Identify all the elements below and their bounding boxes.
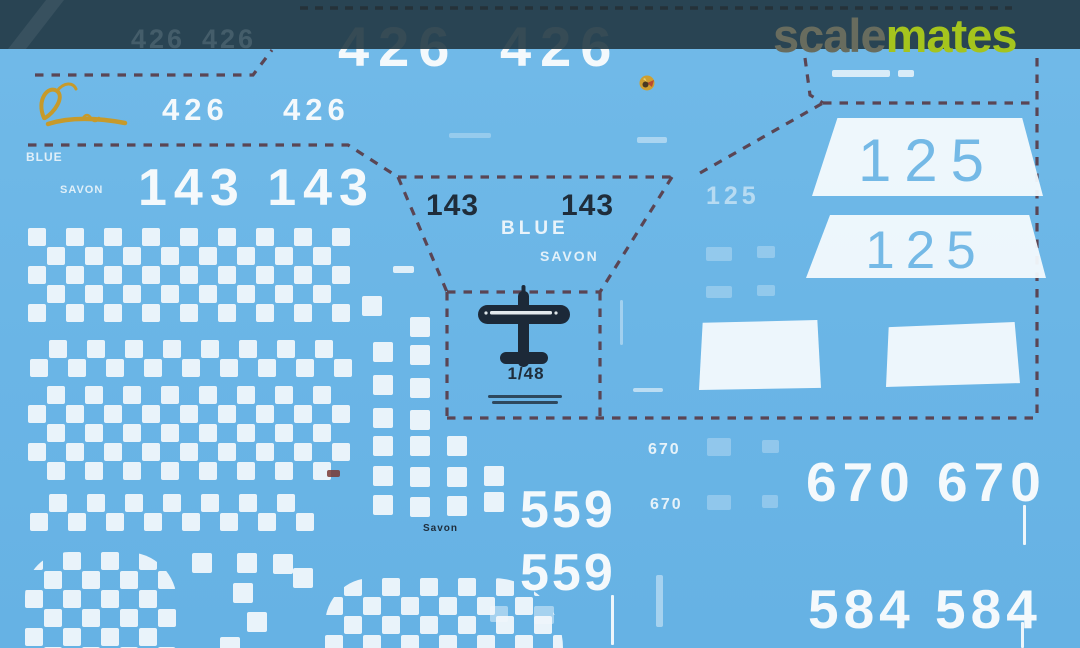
checker-square [104, 443, 122, 461]
decal-sheet-image: 426 426 426 426 BLUE SAVON 143 143 143 1… [0, 0, 1080, 648]
checker-blob [325, 578, 563, 648]
checker-square [344, 578, 362, 596]
checker-square [180, 405, 198, 423]
checker-square [182, 513, 200, 531]
checker-square [66, 304, 84, 322]
fine-print-bar [832, 70, 890, 77]
checker-square [313, 285, 331, 303]
checker-square [44, 571, 62, 589]
checker-square [180, 228, 198, 246]
checker-square [158, 571, 176, 589]
loose-square [410, 467, 430, 487]
checker-square [125, 494, 143, 512]
loose-square [293, 568, 313, 588]
checker-square [258, 359, 276, 377]
fine-print-bar [327, 470, 340, 477]
checker-square [237, 462, 255, 480]
checker-square [218, 266, 236, 284]
checker-square [87, 340, 105, 358]
checker-square [123, 424, 141, 442]
checker-square [218, 443, 236, 461]
checker-square [120, 571, 138, 589]
checker-square [294, 304, 312, 322]
checker-square [66, 405, 84, 423]
loose-square [447, 496, 467, 516]
checker-square [47, 285, 65, 303]
loose-square [273, 554, 293, 574]
faint-ghost-square [707, 495, 731, 510]
checker-square [101, 628, 119, 646]
checker-square [199, 386, 217, 404]
checker-square [382, 578, 400, 596]
loose-square [237, 553, 257, 573]
checker-square [218, 304, 236, 322]
checker-square [85, 285, 103, 303]
fine-print-bar [637, 137, 667, 143]
fine-print-bar [490, 606, 508, 622]
thin-white-line [1023, 505, 1026, 545]
checker-square [28, 228, 46, 246]
checker-square [125, 340, 143, 358]
checker-square [68, 359, 86, 377]
checker-square [180, 304, 198, 322]
loose-square [233, 583, 253, 603]
faint-ghost-square [707, 438, 731, 456]
checker-square [163, 494, 181, 512]
loose-square [410, 410, 430, 430]
checker-square [275, 462, 293, 480]
watermark-scale: scale [773, 9, 886, 62]
checker-square [142, 266, 160, 284]
checker-square [144, 513, 162, 531]
checker-square [275, 424, 293, 442]
checker-square [28, 405, 46, 423]
checker-square [313, 424, 331, 442]
checker-square [458, 578, 476, 596]
checker-square [296, 513, 314, 531]
checker-square [439, 635, 457, 648]
loose-square [410, 497, 430, 517]
checker-square [325, 597, 343, 615]
checker-square [161, 462, 179, 480]
checker-square [28, 266, 46, 284]
checker-square [25, 590, 43, 608]
checker-square [199, 247, 217, 265]
checker-square [68, 513, 86, 531]
checker-square [63, 590, 81, 608]
checker-square [49, 494, 67, 512]
loose-square [373, 342, 393, 362]
checker-square [332, 304, 350, 322]
checker-square [163, 340, 181, 358]
loose-square [373, 466, 393, 486]
scalemates-watermark: scalemates [773, 12, 1016, 59]
checker-square [275, 285, 293, 303]
thin-white-line [611, 595, 614, 645]
checker-square [296, 359, 314, 377]
ghost-number-b: 426 [202, 24, 256, 55]
checker-square [199, 462, 217, 480]
checker-square [104, 228, 122, 246]
checker-square [401, 635, 419, 648]
checker-square [101, 590, 119, 608]
loose-square [192, 553, 212, 573]
checker-square [315, 340, 333, 358]
checker-square [239, 340, 257, 358]
checker-square [332, 405, 350, 423]
faint-ghost-square [706, 286, 732, 298]
loose-square [247, 612, 267, 632]
checker-square [313, 247, 331, 265]
fine-print-bar [620, 300, 623, 345]
fine-print-bar [534, 606, 554, 624]
checker-square [220, 513, 238, 531]
yellow-script-logo [28, 80, 138, 132]
checker-square [106, 513, 124, 531]
checker-square [180, 266, 198, 284]
checker-square [182, 359, 200, 377]
checker-square [180, 443, 198, 461]
checker-square [237, 285, 255, 303]
checker-square [66, 266, 84, 284]
checker-square [63, 552, 81, 570]
checker-square [139, 590, 157, 608]
checker-square [332, 443, 350, 461]
checker-square [256, 228, 274, 246]
checker-square [199, 424, 217, 442]
checker-square [106, 359, 124, 377]
loose-square [447, 436, 467, 456]
checker-square [139, 552, 157, 570]
checker-square [332, 266, 350, 284]
checker-square [66, 228, 84, 246]
checker-square [332, 228, 350, 246]
checker-square [256, 405, 274, 423]
checker-square [294, 266, 312, 284]
checker-square [144, 359, 162, 377]
checker-square [237, 424, 255, 442]
checker-square [142, 443, 160, 461]
checker-square [477, 635, 495, 648]
faint-ghost-square [757, 246, 775, 258]
loose-square [373, 408, 393, 428]
checker-square [275, 386, 293, 404]
checker-square [66, 443, 84, 461]
checker-square [277, 494, 295, 512]
checker-square [123, 386, 141, 404]
fine-print-bar [898, 70, 914, 77]
checker-square [218, 228, 236, 246]
checker-square [142, 405, 160, 423]
faint-ghost-square [757, 285, 775, 296]
faint-ghost-square [706, 247, 732, 261]
checker-square [294, 405, 312, 423]
checker-square [553, 635, 563, 648]
checker-square [294, 443, 312, 461]
faint-ghost-square [762, 440, 779, 453]
checker-square [277, 340, 295, 358]
checker-blob [25, 552, 177, 648]
checker-square [161, 424, 179, 442]
checker-square [334, 359, 352, 377]
loose-square [410, 345, 430, 365]
thin-white-line [1021, 622, 1024, 648]
checker-square [534, 578, 552, 596]
fine-print-bar [449, 133, 491, 138]
checker-square [201, 340, 219, 358]
checker-square [87, 494, 105, 512]
fine-print-bar [656, 575, 663, 627]
checker-square [258, 513, 276, 531]
fine-print-bar [633, 388, 663, 392]
checker-square [313, 386, 331, 404]
faint-ghost-square [762, 495, 778, 508]
small-insignia-icon [638, 74, 656, 92]
checker-square [161, 247, 179, 265]
checker-square [515, 635, 533, 648]
checker-square [363, 635, 381, 648]
checker-square [123, 247, 141, 265]
checker-square [85, 462, 103, 480]
checker-square [199, 285, 217, 303]
loose-square [410, 317, 430, 337]
checker-square [420, 616, 438, 634]
fine-print-bar [488, 395, 562, 398]
checker-square [139, 628, 157, 646]
checker-square [325, 635, 343, 648]
ghost-number-a: 426 [131, 24, 185, 55]
watermark-mates: mates [886, 9, 1017, 62]
checker-square [25, 628, 43, 646]
checker-square [496, 578, 514, 596]
checker-square [85, 424, 103, 442]
loose-square [220, 637, 240, 648]
loose-square [373, 375, 393, 395]
checker-square [101, 552, 119, 570]
checker-square [344, 616, 362, 634]
checker-square [47, 247, 65, 265]
checker-square [28, 443, 46, 461]
checker-square [515, 597, 533, 615]
checker-square [294, 228, 312, 246]
checker-square [49, 340, 67, 358]
loose-square [484, 466, 504, 486]
checker-square [158, 609, 176, 627]
checker-square [104, 405, 122, 423]
checker-square [142, 304, 160, 322]
checker-square [458, 616, 476, 634]
checker-square [218, 405, 236, 423]
checker-square [161, 386, 179, 404]
checker-square [382, 616, 400, 634]
checker-square [401, 597, 419, 615]
checker-square [30, 513, 48, 531]
checker-square [553, 597, 563, 615]
checker-patterns-layer [0, 0, 1080, 648]
checker-square [420, 578, 438, 596]
checker-square [275, 247, 293, 265]
fine-print-bar [393, 266, 414, 273]
checker-square [104, 266, 122, 284]
loose-square [373, 436, 393, 456]
checker-square [161, 285, 179, 303]
loose-square [447, 467, 467, 487]
loose-square [362, 296, 382, 316]
checker-square [47, 424, 65, 442]
checker-square [104, 304, 122, 322]
checker-square [47, 386, 65, 404]
loose-square [410, 436, 430, 456]
checker-square [256, 304, 274, 322]
checker-square [142, 228, 160, 246]
fine-print-bar [492, 401, 558, 404]
checker-square [120, 609, 138, 627]
checker-square [47, 462, 65, 480]
checker-square [237, 247, 255, 265]
checker-square [439, 597, 457, 615]
checker-square [237, 386, 255, 404]
checker-square [256, 266, 274, 284]
checker-square [82, 609, 100, 627]
checker-square [44, 609, 62, 627]
checker-square [123, 462, 141, 480]
checker-square [30, 359, 48, 377]
checker-square [363, 597, 381, 615]
checker-square [82, 571, 100, 589]
checker-square [239, 494, 257, 512]
checker-square [85, 386, 103, 404]
checker-square [85, 247, 103, 265]
checker-square [220, 359, 238, 377]
checker-square [25, 552, 43, 570]
checker-square [201, 494, 219, 512]
loose-square [373, 495, 393, 515]
checker-square [28, 304, 46, 322]
checker-square [256, 443, 274, 461]
loose-square [410, 378, 430, 398]
checker-square [123, 285, 141, 303]
checker-square [63, 628, 81, 646]
loose-square [484, 492, 504, 512]
